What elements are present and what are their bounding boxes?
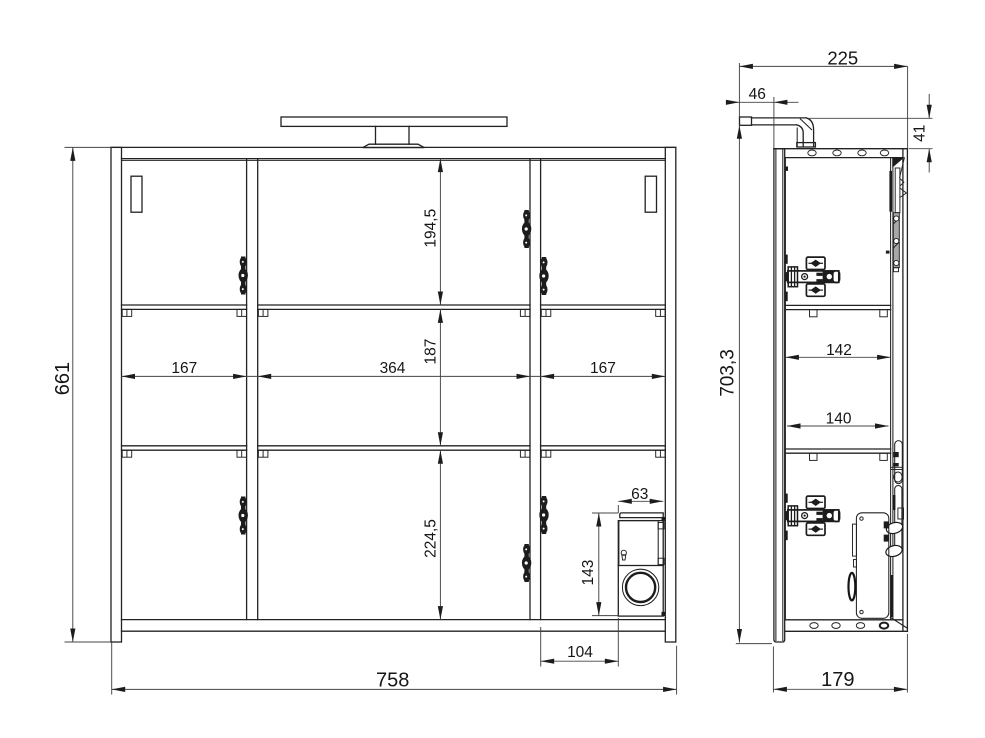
- svg-text:187: 187: [422, 339, 439, 365]
- svg-text:104: 104: [567, 644, 593, 661]
- svg-text:63: 63: [631, 486, 648, 503]
- svg-text:143: 143: [580, 560, 597, 586]
- svg-text:140: 140: [826, 411, 852, 428]
- svg-text:364: 364: [380, 360, 406, 377]
- svg-text:167: 167: [171, 360, 197, 377]
- svg-text:224,5: 224,5: [422, 519, 439, 558]
- svg-text:41: 41: [912, 125, 929, 142]
- svg-text:225: 225: [827, 48, 858, 69]
- svg-text:142: 142: [826, 342, 852, 359]
- svg-text:46: 46: [749, 86, 766, 103]
- svg-text:703,3: 703,3: [718, 349, 739, 397]
- svg-text:179: 179: [821, 669, 854, 691]
- svg-text:661: 661: [52, 362, 74, 395]
- svg-text:758: 758: [376, 669, 409, 691]
- svg-text:194,5: 194,5: [423, 209, 440, 248]
- svg-text:167: 167: [590, 360, 616, 377]
